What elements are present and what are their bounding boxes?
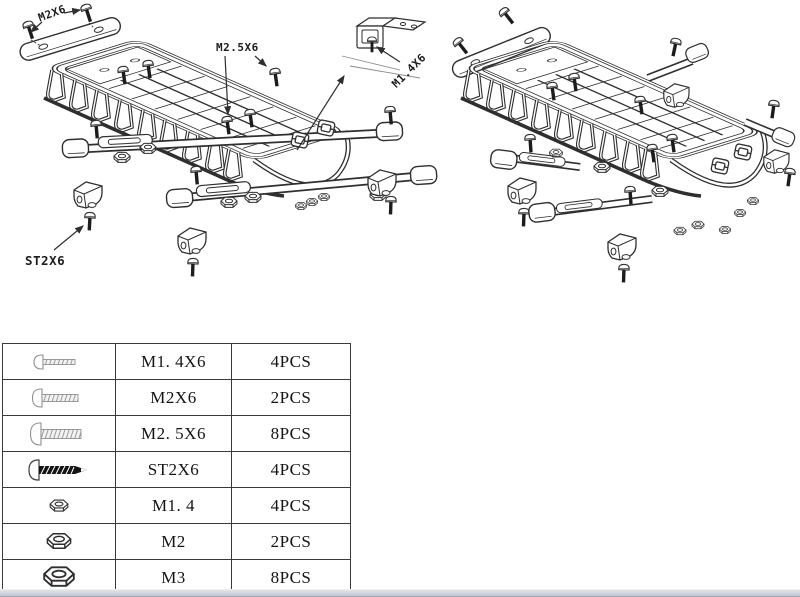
part-size: M2X6 xyxy=(116,380,232,416)
m2x6-screw xyxy=(80,3,95,23)
table-row: ST2X6 4PCS xyxy=(3,452,351,488)
table-row: M2X6 2PCS xyxy=(3,380,351,416)
part-size: M2. 5X6 xyxy=(116,416,232,452)
hex-nut-small-icon xyxy=(3,488,116,524)
part-qty: 4PCS xyxy=(232,344,351,380)
exploded-diagram-left: M2X6 M2.5X6 M1.4X6 ST2X6 xyxy=(0,0,450,330)
horizontal-scrollbar[interactable] xyxy=(0,589,800,597)
part-qty: 2PCS xyxy=(232,380,351,416)
part-qty: 4PCS xyxy=(232,488,351,524)
rack-nuts xyxy=(594,162,759,234)
table-row: M1. 4 4PCS xyxy=(3,488,351,524)
mount-bar-s xyxy=(528,186,652,283)
label-st2x6: ST2X6 xyxy=(25,253,65,268)
part-size: ST2X6 xyxy=(116,452,232,488)
machine-screw-medium-icon xyxy=(3,380,116,416)
part-qty: 2PCS xyxy=(232,524,351,560)
machine-screw-small-icon xyxy=(3,344,116,380)
roof-plate xyxy=(18,16,122,63)
machine-screw-large-icon xyxy=(3,416,116,452)
table-row: M2. 5X6 8PCS xyxy=(3,416,351,452)
latch-buckle xyxy=(711,157,730,174)
part-size: M2 xyxy=(116,524,232,560)
latch-buckle xyxy=(734,143,753,160)
label-m2x6: M2X6 xyxy=(36,2,67,24)
instruction-sheet: M2X6 M2.5X6 M1.4X6 ST2X6 xyxy=(0,0,800,597)
hex-nut-medium-icon xyxy=(3,524,116,560)
plate-screw xyxy=(452,36,471,57)
part-qty: 4PCS xyxy=(232,452,351,488)
label-m2-5x6: M2.5X6 xyxy=(216,41,259,54)
latch-buckle xyxy=(317,119,336,136)
part-size: M1. 4 xyxy=(116,488,232,524)
table-row: M1. 4X6 4PCS xyxy=(3,344,351,380)
exploded-diagram-right xyxy=(440,0,800,300)
table-row: M2 2PCS xyxy=(3,524,351,560)
part-qty: 8PCS xyxy=(232,416,351,452)
m2x6-screw xyxy=(22,20,37,40)
label-m1-4x6: M1.4X6 xyxy=(389,51,428,90)
rack-hoops xyxy=(48,70,241,180)
self-tapping-screw-icon xyxy=(3,452,116,488)
mount-bar-ne xyxy=(648,37,710,107)
part-size: M1. 4X6 xyxy=(116,344,232,380)
rack-screws xyxy=(91,60,397,185)
plate-screw xyxy=(498,6,517,27)
parts-table: M1. 4X6 4PCS M2X6 2PCS M2. 5X6 8PCS ST2X… xyxy=(2,343,351,596)
